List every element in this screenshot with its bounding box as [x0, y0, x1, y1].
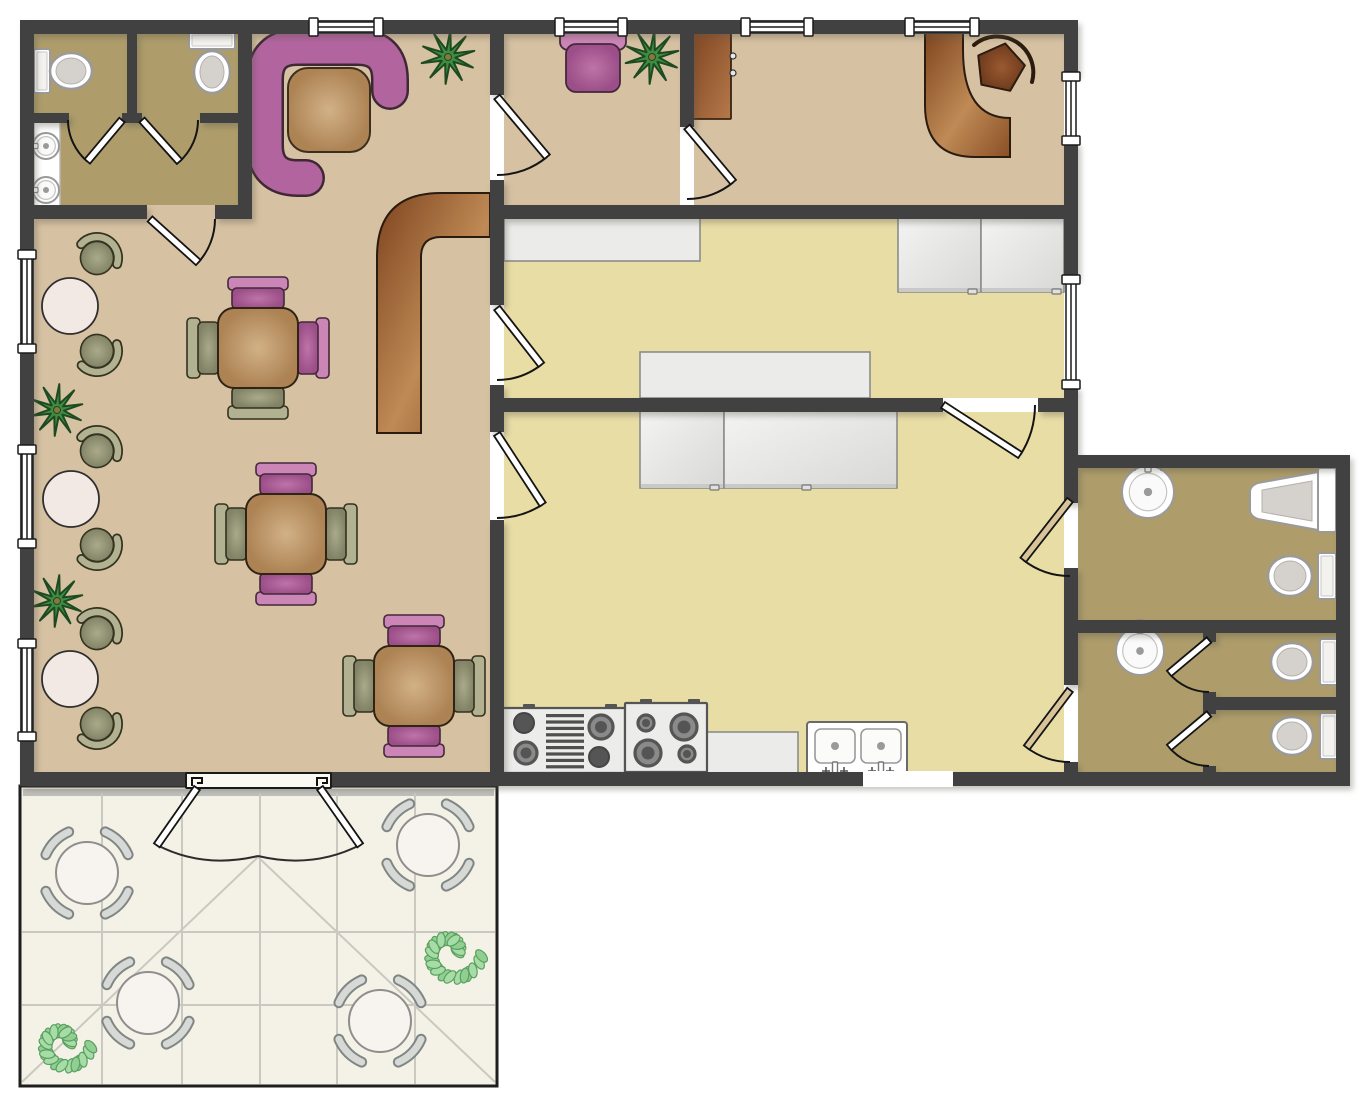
- wall: [1203, 766, 1216, 786]
- window-cap: [804, 18, 813, 36]
- stove-grill-bar: [546, 720, 584, 723]
- cabinet-base: [982, 288, 1063, 292]
- stove-knob: [523, 704, 535, 708]
- stove-grill-bar: [546, 765, 584, 768]
- chair-seat: [325, 508, 346, 560]
- dining-chair: [297, 318, 329, 378]
- dining-table: [374, 646, 454, 726]
- toilet-tank-inner: [1323, 642, 1335, 682]
- wall: [1336, 455, 1350, 786]
- dining-chair: [343, 656, 375, 716]
- patio-table: [397, 814, 459, 876]
- window-cap: [1062, 136, 1080, 145]
- toilet-bowl-inner: [1277, 722, 1307, 750]
- palm-trunk: [649, 54, 656, 61]
- stove-grill-bar: [546, 752, 584, 755]
- kitchen-counter: [504, 215, 700, 261]
- sink-drain: [43, 143, 49, 149]
- cabinet-handle: [730, 70, 736, 76]
- floorplan-svg: [0, 0, 1363, 1100]
- toilet: [1271, 639, 1338, 685]
- dining-chair: [384, 615, 444, 647]
- wall: [490, 520, 504, 786]
- wall: [238, 20, 252, 219]
- kitchen-counter: [640, 352, 870, 398]
- wall: [1064, 762, 1078, 786]
- dining-chair: [187, 318, 219, 378]
- door-frame: [186, 773, 331, 788]
- patio-table-set: [107, 962, 189, 1044]
- chair-seat: [453, 660, 474, 712]
- palm-trunk: [54, 407, 61, 414]
- stove: [502, 704, 625, 773]
- patio-table-set: [387, 804, 469, 886]
- patio-table-set: [46, 832, 128, 914]
- wall: [127, 20, 137, 120]
- chair-seat: [388, 626, 440, 647]
- booth-table: [288, 68, 370, 152]
- patio-layer: [20, 786, 497, 1086]
- wall: [1064, 20, 1078, 75]
- round-table: [43, 471, 99, 527]
- cabinet-handle: [968, 289, 977, 294]
- floor-plan-page: [0, 0, 1363, 1100]
- kitchen-sink: [807, 722, 907, 779]
- window-cap: [18, 539, 36, 548]
- toilet: [1268, 553, 1336, 599]
- chair-seat: [226, 508, 247, 560]
- toilet-tank-inner: [1323, 716, 1335, 756]
- stove-grill-bar: [546, 746, 584, 749]
- stove-knob: [605, 704, 617, 708]
- patio-table: [117, 972, 179, 1034]
- cabinet-handle: [802, 485, 811, 490]
- chair-seat: [388, 725, 440, 746]
- urinal-plate: [1318, 468, 1336, 532]
- dining-chair: [215, 504, 247, 564]
- patio-edge-band: [23, 789, 494, 796]
- wall: [34, 113, 69, 123]
- stove-knob: [640, 699, 652, 703]
- stove-burner-core: [683, 750, 691, 758]
- stove-grill-bar: [546, 714, 584, 717]
- stove: [625, 699, 707, 772]
- toilet-bowl-inner: [56, 58, 86, 84]
- sink-drain: [43, 187, 49, 193]
- palm-trunk: [54, 598, 61, 605]
- kitchen-cabinet: [898, 215, 981, 292]
- stove-grill-bar: [546, 759, 584, 762]
- dining-chair: [228, 277, 288, 309]
- window-cap: [1062, 380, 1080, 389]
- cabinet-handle: [730, 53, 736, 59]
- sink-drain: [877, 742, 885, 750]
- window-cap: [970, 18, 979, 36]
- chair-seat: [354, 660, 375, 712]
- dining-chair: [325, 504, 357, 564]
- sink-drain: [1136, 647, 1144, 655]
- window-cap: [618, 18, 627, 36]
- dining-chair: [228, 387, 288, 419]
- cabinet-handle: [1052, 289, 1061, 294]
- window-cap: [18, 250, 36, 259]
- wall-opening: [863, 771, 953, 787]
- sink-drain: [831, 742, 839, 750]
- dining-table: [246, 494, 326, 574]
- office-cabinet: [688, 30, 731, 119]
- toilet: [34, 49, 92, 93]
- kitchen-cabinet: [724, 409, 897, 488]
- window-cap: [18, 344, 36, 353]
- wall: [680, 20, 694, 127]
- toilet-tank-inner: [1321, 556, 1333, 596]
- toilet-bowl-inner: [1274, 561, 1306, 591]
- dining-chair: [453, 656, 485, 716]
- chair-seat: [198, 322, 219, 374]
- stove-burner-core: [678, 721, 691, 734]
- round-table: [42, 651, 98, 707]
- stove-grill-bar: [546, 740, 584, 743]
- kitchen-cabinet: [640, 409, 724, 488]
- chair-seat: [297, 322, 318, 374]
- stove-burner-core: [595, 721, 607, 733]
- stove-knob: [688, 699, 700, 703]
- wall: [34, 205, 147, 219]
- palm-trunk: [445, 54, 452, 61]
- wall: [490, 180, 504, 305]
- wall: [490, 205, 1078, 219]
- toilet-tank-inner: [37, 52, 47, 90]
- chair-seat: [260, 573, 312, 594]
- toilet: [1271, 713, 1338, 759]
- window-cap: [309, 18, 318, 36]
- window-cap: [18, 639, 36, 648]
- window-cap: [374, 18, 383, 36]
- chair-seat: [260, 474, 312, 495]
- dining-chair: [384, 725, 444, 757]
- cabinet-handle: [710, 485, 719, 490]
- stove-burner-core: [521, 748, 532, 759]
- kitchen-cabinet: [981, 215, 1064, 292]
- wall: [490, 398, 943, 412]
- stove-burner: [589, 747, 609, 767]
- wall: [200, 113, 238, 123]
- patio-table-set: [339, 980, 421, 1062]
- round-table: [42, 278, 98, 334]
- wall: [1203, 697, 1336, 710]
- window-cap: [741, 18, 750, 36]
- stove-burner: [514, 713, 534, 733]
- patio-table: [349, 990, 411, 1052]
- dining-table: [218, 308, 298, 388]
- sink-drain: [1144, 488, 1152, 496]
- window-cap: [555, 18, 564, 36]
- wall: [1078, 620, 1336, 633]
- toilet: [189, 32, 235, 93]
- wall: [215, 205, 252, 219]
- office-armchair-seat: [566, 44, 620, 92]
- stove-burner-core: [642, 719, 650, 727]
- window-cap: [905, 18, 914, 36]
- window-cap: [1062, 275, 1080, 284]
- toilet-tank-inner: [192, 35, 232, 46]
- window-cap: [18, 732, 36, 741]
- toilet-bowl-inner: [200, 56, 224, 88]
- stove-burner-core: [642, 747, 655, 760]
- window: [1062, 72, 1080, 145]
- patio-table: [56, 842, 118, 904]
- kitchen-counter: [707, 732, 798, 777]
- wall: [490, 20, 504, 95]
- dining-chair: [256, 573, 316, 605]
- dining-chair: [256, 463, 316, 495]
- chair-seat: [232, 288, 284, 309]
- wall: [1078, 455, 1350, 468]
- stove-grill-bar: [546, 727, 584, 730]
- chair-seat: [232, 387, 284, 408]
- window-cap: [18, 445, 36, 454]
- toilet-bowl-inner: [1277, 648, 1307, 676]
- window-cap: [1062, 72, 1080, 81]
- wall: [1064, 568, 1078, 685]
- stove-grill-bar: [546, 733, 584, 736]
- wall: [1038, 398, 1078, 412]
